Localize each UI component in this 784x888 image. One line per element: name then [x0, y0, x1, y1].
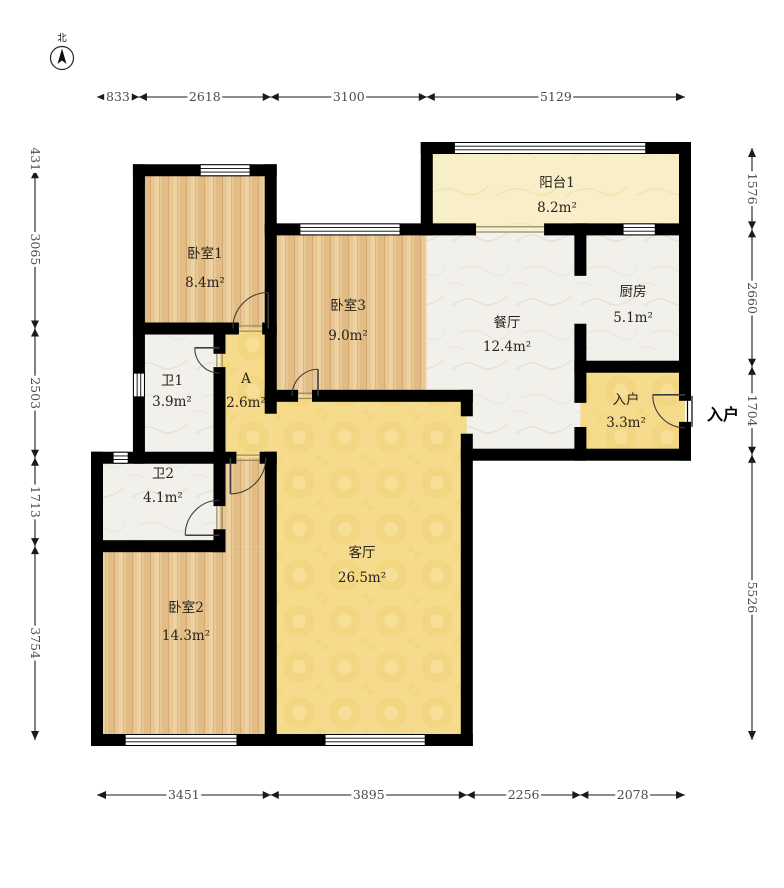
- room-area-hall-a: 2.6m²: [226, 395, 266, 411]
- wall-segment: [91, 540, 225, 552]
- window: [113, 452, 128, 463]
- room-name-bath1: 卫1: [161, 373, 183, 389]
- dim-tick: [263, 93, 279, 101]
- dim-end-arrow: [31, 731, 39, 740]
- room-name-balcony1: 阳台1: [539, 175, 575, 191]
- compass-north-label: 北: [57, 33, 67, 44]
- dim-label-group: 3754: [28, 626, 43, 661]
- wall-segment: [461, 434, 473, 746]
- dim-label: 2618: [189, 89, 221, 104]
- dim-tick: [263, 791, 279, 799]
- dim-label: 1704: [745, 395, 760, 427]
- dim-label-group: 5526: [745, 580, 760, 615]
- dim-label: 3754: [28, 627, 43, 659]
- dim-end-arrow: [676, 791, 685, 799]
- dim-end-arrow: [676, 93, 685, 101]
- wall-segment: [461, 390, 473, 416]
- room-area-kitchen: 5.1m²: [613, 310, 653, 326]
- dim-label-group: 2660: [745, 281, 760, 316]
- window: [125, 735, 237, 746]
- floors-layer: [97, 148, 685, 740]
- dim-tick: [31, 538, 39, 554]
- room-name-living: 客厅: [349, 544, 376, 561]
- window: [454, 143, 645, 154]
- dim-chain-left: 4313065250317133754: [28, 145, 43, 740]
- dim-label: 1713: [28, 486, 43, 518]
- entry-direction-label: 入户: [707, 405, 739, 424]
- room-area-balcony1: 8.2m²: [537, 200, 577, 216]
- dim-tick: [748, 359, 756, 375]
- dim-label: 1576: [745, 173, 760, 205]
- room-floor-dining: [467, 396, 581, 455]
- dim-tick: [131, 93, 147, 101]
- wall-segment: [421, 142, 433, 235]
- dim-label: 3100: [333, 89, 365, 104]
- dim-chain-right: 1576266017045526: [745, 148, 760, 740]
- dim-tick: [748, 447, 756, 463]
- floor-plan: 阳台18.2m²卧室18.4m²卧室39.0m²厨房5.1m²餐厅12.4m²入…: [0, 0, 784, 888]
- room-name-bedroom3: 卧室3: [330, 297, 366, 314]
- wall-segment: [574, 361, 691, 373]
- dim-label: 3451: [168, 787, 200, 802]
- dim-tick: [459, 791, 475, 799]
- room-area-bedroom1: 8.4m²: [185, 275, 225, 291]
- dim-label-group: 3065: [28, 232, 43, 267]
- window: [133, 373, 144, 397]
- dim-label: 2660: [745, 282, 760, 314]
- dim-end-arrow: [748, 148, 756, 157]
- dim-tick: [419, 93, 435, 101]
- wall-segment: [574, 223, 586, 275]
- room-area-dining: 12.4m²: [483, 339, 531, 355]
- wall-segment: [312, 390, 473, 402]
- window: [325, 735, 425, 746]
- dim-label-group: 1704: [745, 393, 760, 428]
- wall-segment: [133, 164, 145, 463]
- dim-chain-bottom: 3451389522562078: [97, 787, 685, 802]
- dim-label: 5129: [540, 89, 572, 104]
- room-floor-hall-a: [219, 329, 270, 458]
- window: [200, 165, 250, 176]
- dim-label: 5526: [745, 581, 760, 613]
- wall-segment: [544, 223, 691, 235]
- room-area-entry: 3.3m²: [606, 415, 646, 431]
- room-name-bedroom1: 卧室1: [187, 245, 223, 262]
- dim-label: 3065: [28, 233, 43, 265]
- compass: 北: [51, 33, 74, 70]
- dim-label-group: 1713: [28, 485, 43, 520]
- room-name-kitchen: 厨房: [620, 284, 647, 300]
- dim-tick: [748, 221, 756, 237]
- dim-label: 3895: [353, 787, 385, 802]
- dim-label: 833: [106, 89, 130, 104]
- dim-end-arrow: [97, 791, 106, 799]
- floor-plan-page: 阳台18.2m²卧室18.4m²卧室39.0m²厨房5.1m²餐厅12.4m²入…: [0, 0, 784, 888]
- dim-tick: [572, 791, 588, 799]
- room-area-bedroom3: 9.0m²: [328, 328, 368, 344]
- room-name-hall-a: A: [240, 371, 251, 387]
- wall-segment: [574, 324, 586, 403]
- wall-segment: [213, 367, 225, 506]
- dim-label: 431: [28, 147, 43, 171]
- wall-segment: [574, 427, 586, 461]
- room-floor-living: [271, 396, 467, 740]
- dim-label-group: 2503: [28, 376, 43, 411]
- dim-label: 2078: [617, 787, 649, 802]
- dim-label: 2256: [508, 787, 540, 802]
- room-floor-dining: [427, 229, 581, 395]
- wall-segment: [213, 323, 225, 354]
- room-area-bath1: 3.9m²: [152, 394, 192, 410]
- window: [623, 224, 655, 235]
- dim-end-arrow: [748, 731, 756, 740]
- wall-segment: [679, 142, 691, 401]
- room-name-bath2: 卫2: [152, 466, 174, 482]
- entry-annotation: 入户: [707, 405, 739, 424]
- wall-segment: [213, 529, 225, 552]
- room-name-bedroom2: 卧室2: [168, 599, 204, 616]
- room-area-living: 26.5m²: [338, 570, 386, 586]
- dim-label-group: 431: [28, 145, 43, 173]
- wall-segment: [265, 452, 277, 746]
- dim-label-group: 1576: [745, 171, 760, 206]
- compass-needle-icon: [58, 49, 67, 65]
- room-area-bath2: 4.1m²: [143, 490, 183, 506]
- room-floor-entry: [580, 367, 685, 455]
- wall-segment: [91, 452, 103, 746]
- room-name-entry: 入户: [613, 391, 640, 408]
- room-name-dining: 餐厅: [494, 315, 521, 331]
- dim-chain-top: 833261831005129: [97, 89, 685, 104]
- room-area-bedroom2: 14.3m²: [162, 628, 210, 644]
- dim-label: 2503: [28, 377, 43, 409]
- dim-tick: [31, 321, 39, 337]
- wall-segment: [265, 164, 277, 413]
- dim-tick: [31, 450, 39, 466]
- window: [300, 224, 400, 235]
